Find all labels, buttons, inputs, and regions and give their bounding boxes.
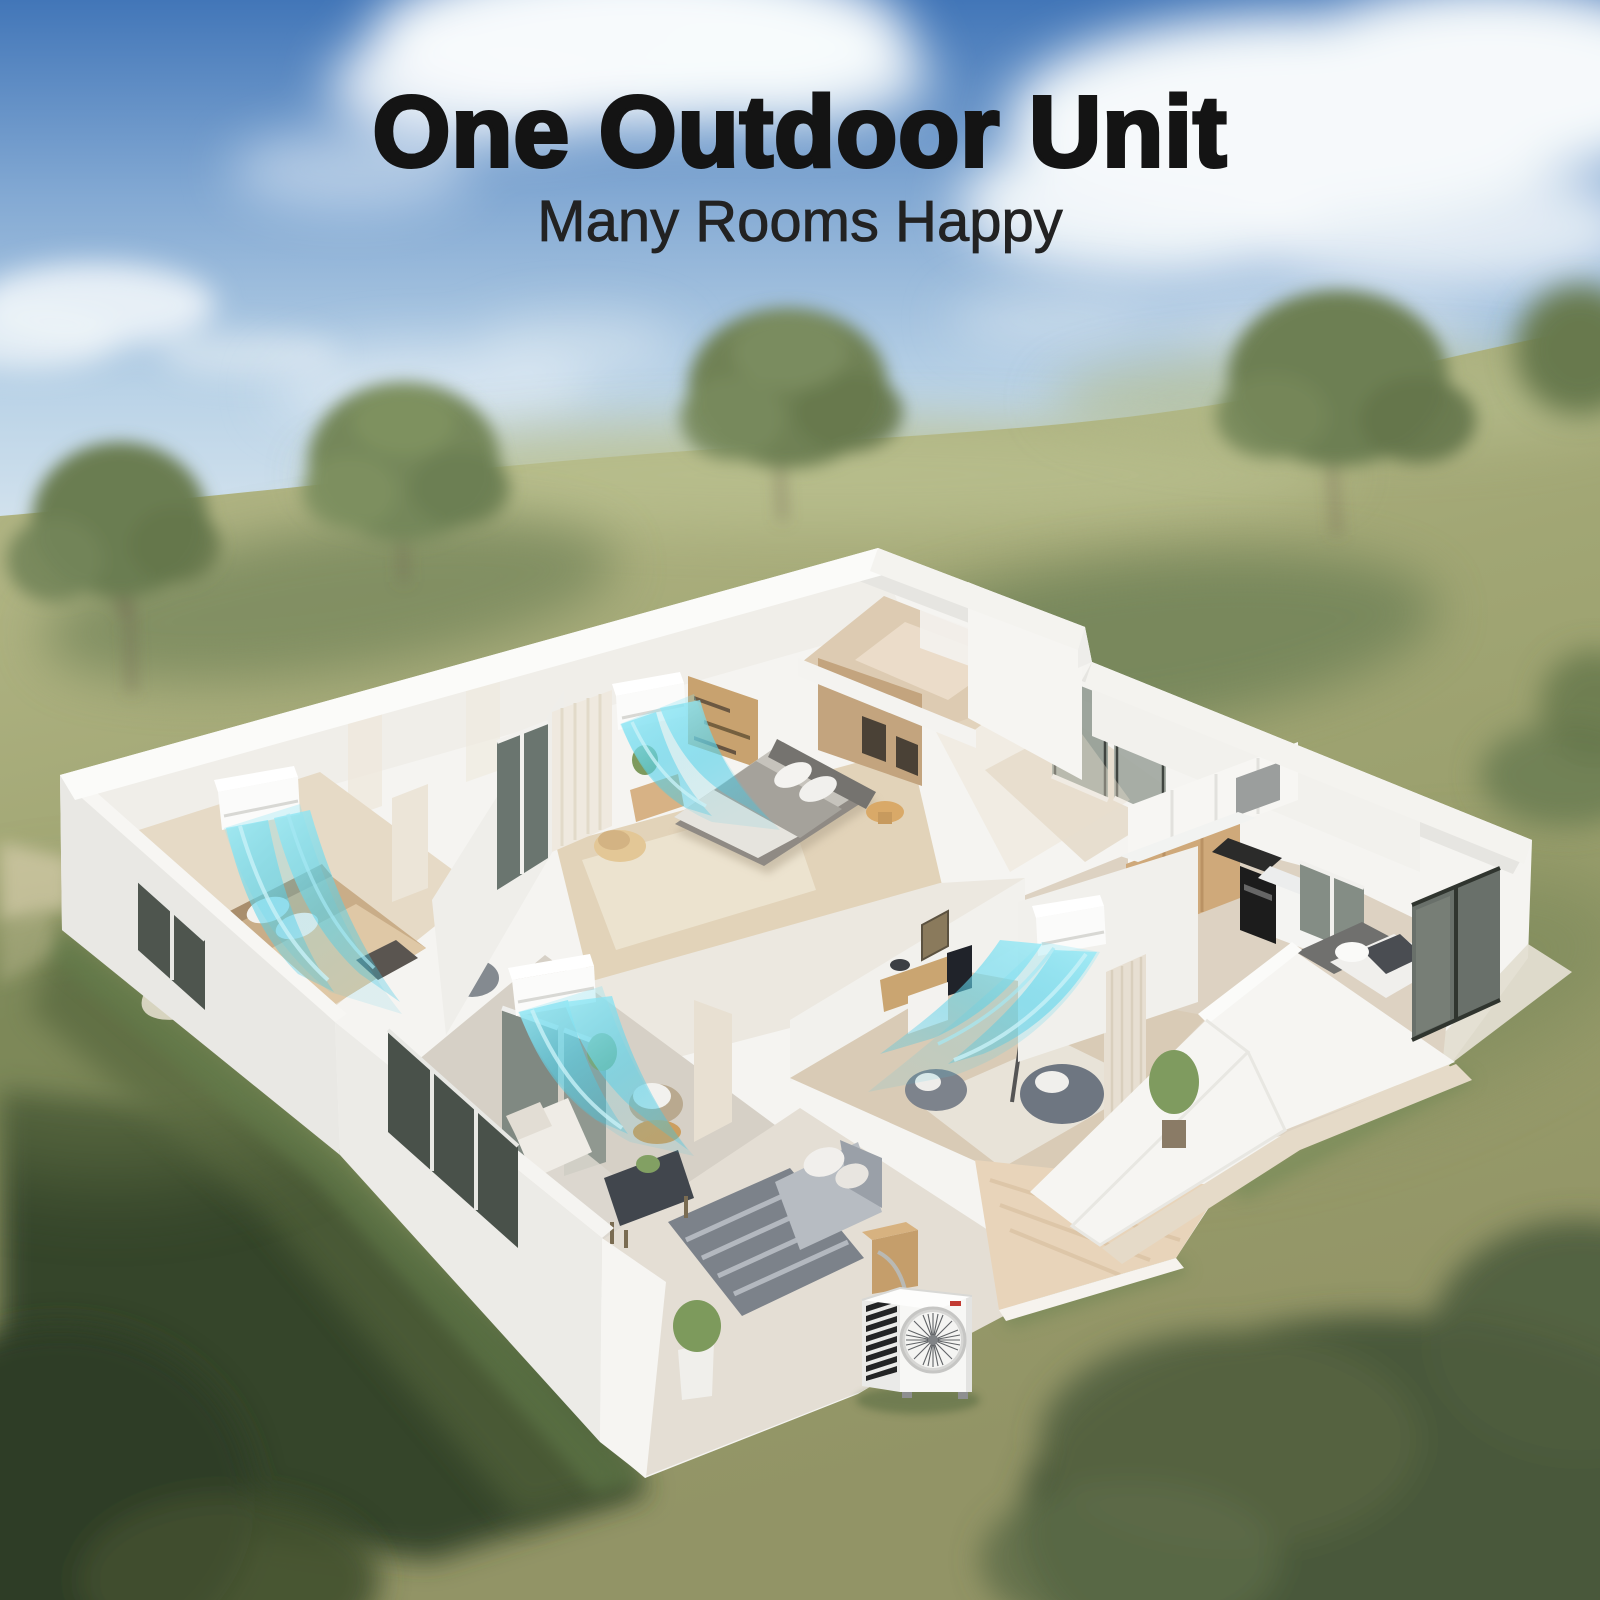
svg-text:One Outdoor Unit: One Outdoor Unit <box>373 76 1228 188</box>
svg-text:Many Rooms Happy: Many Rooms Happy <box>537 189 1062 254</box>
